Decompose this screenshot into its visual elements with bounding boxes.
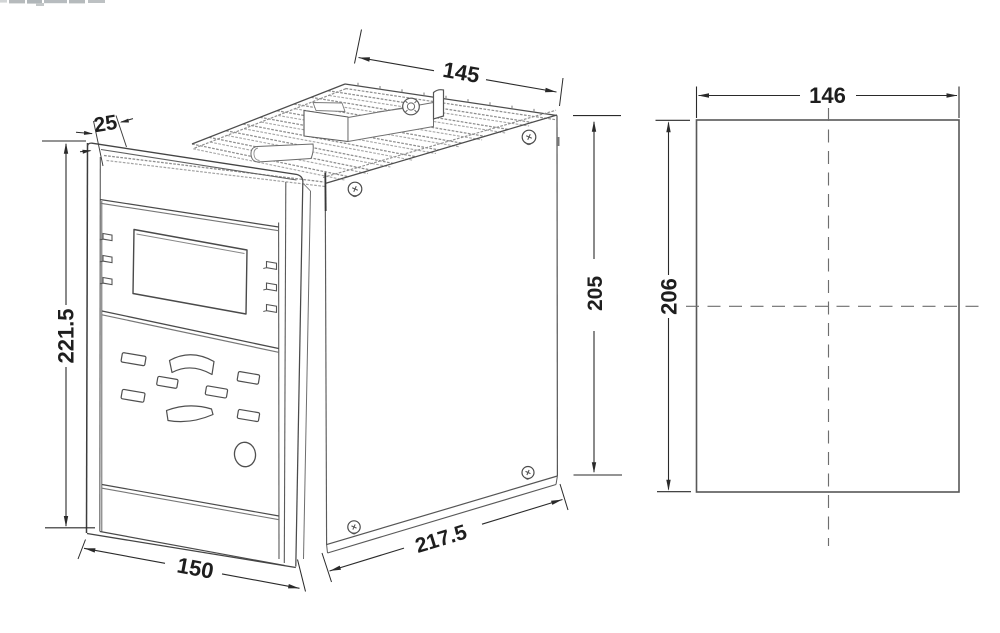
svg-text:25: 25 — [92, 111, 119, 137]
svg-text:146: 146 — [809, 83, 846, 108]
svg-text:205: 205 — [584, 276, 607, 311]
svg-text:206: 206 — [656, 278, 681, 315]
svg-text:221.5: 221.5 — [54, 308, 79, 363]
